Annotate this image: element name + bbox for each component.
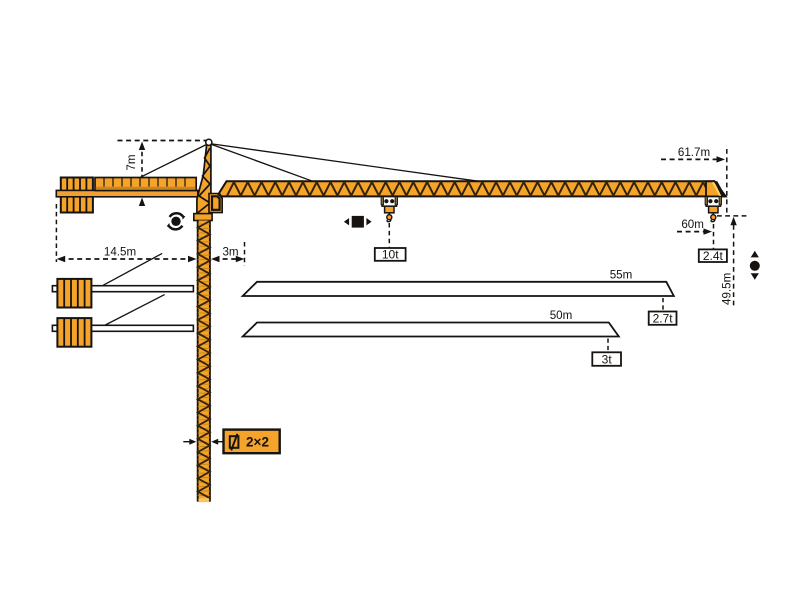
svg-text:3m: 3m: [222, 246, 238, 259]
svg-text:50m: 50m: [550, 309, 573, 322]
svg-text:2×2: 2×2: [246, 434, 269, 449]
svg-text:10t: 10t: [382, 248, 399, 262]
svg-text:61.7m: 61.7m: [678, 146, 710, 159]
svg-text:14.5m: 14.5m: [104, 246, 136, 259]
svg-text:7m: 7m: [125, 154, 138, 170]
svg-text:60m: 60m: [681, 218, 704, 231]
svg-text:2.7t: 2.7t: [653, 311, 674, 325]
svg-text:49.5m: 49.5m: [721, 273, 734, 305]
svg-text:3t: 3t: [602, 352, 613, 366]
svg-text:55m: 55m: [610, 269, 633, 282]
svg-text:2.4t: 2.4t: [703, 249, 724, 263]
